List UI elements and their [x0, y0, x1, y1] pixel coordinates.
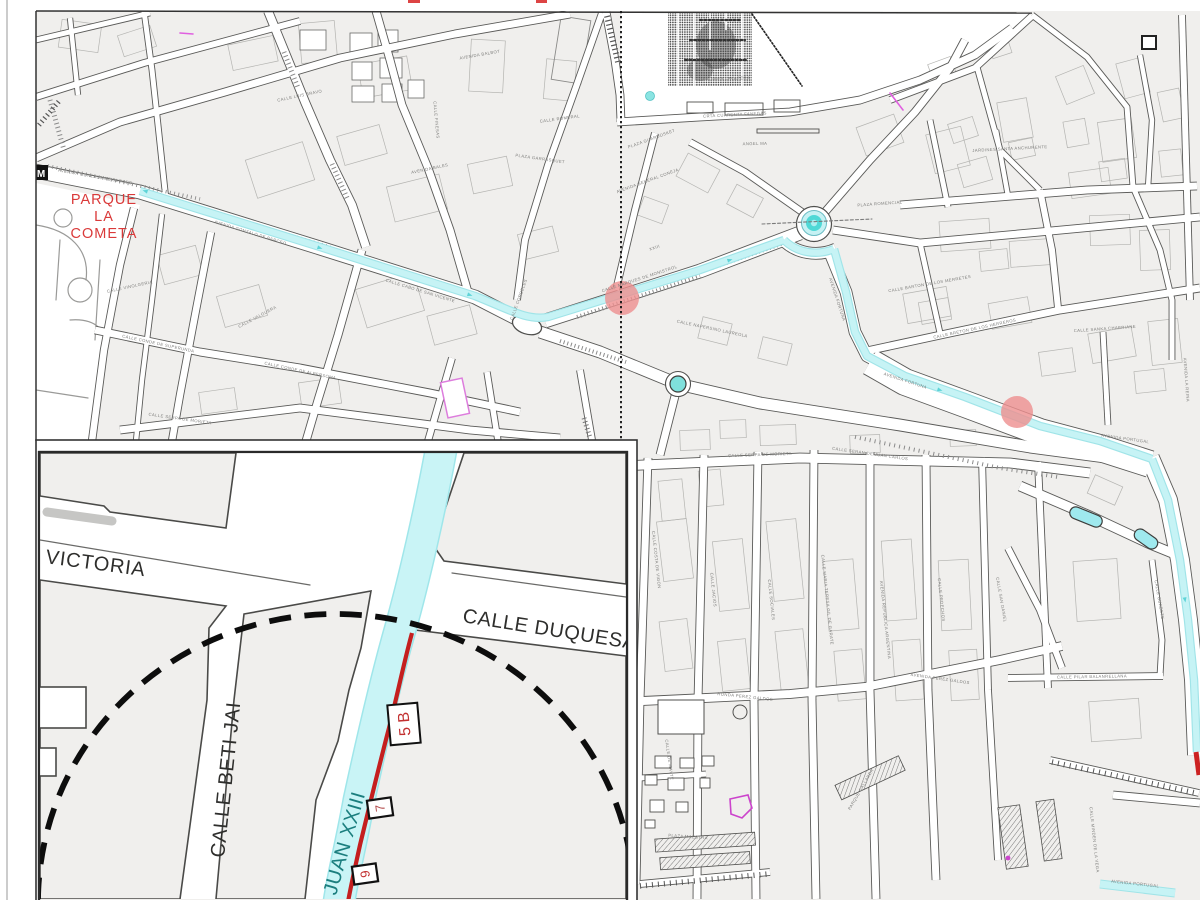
svg-text:LA: LA	[94, 209, 114, 225]
svg-text:M: M	[37, 169, 45, 180]
svg-text:ANGEL MA: ANGEL MA	[743, 141, 768, 146]
svg-text:5 B: 5 B	[395, 711, 414, 736]
svg-text:PARQUE: PARQUE	[71, 192, 137, 208]
svg-text:COMETA: COMETA	[71, 226, 138, 242]
